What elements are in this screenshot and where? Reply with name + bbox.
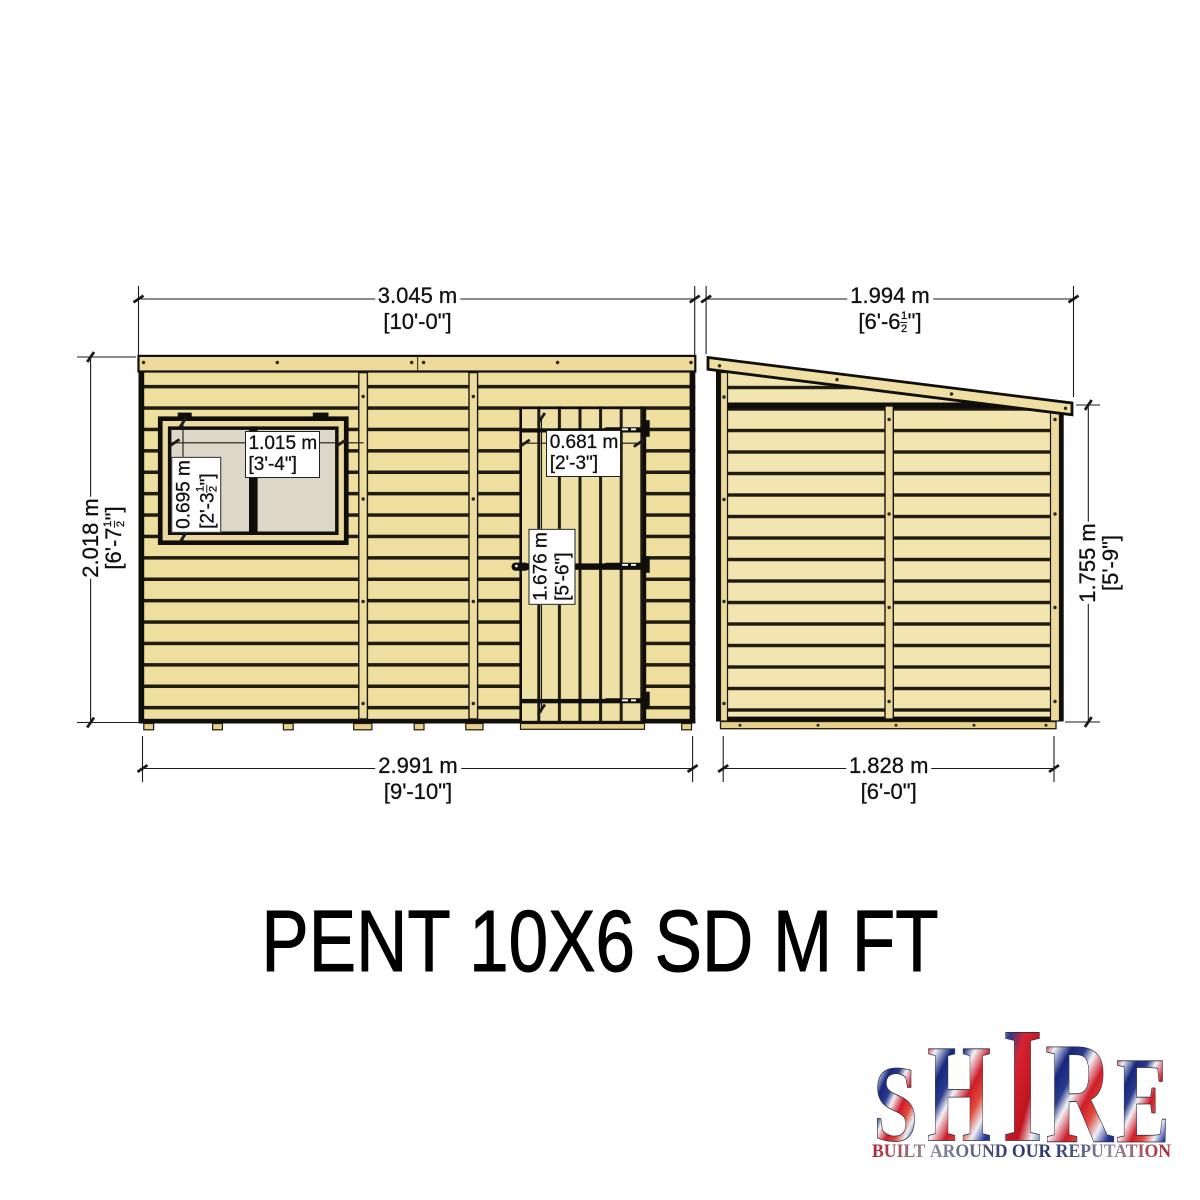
svg-text:BUILT AROUND OUR REPUTATION: BUILT AROUND OUR REPUTATION xyxy=(872,1141,1171,1162)
